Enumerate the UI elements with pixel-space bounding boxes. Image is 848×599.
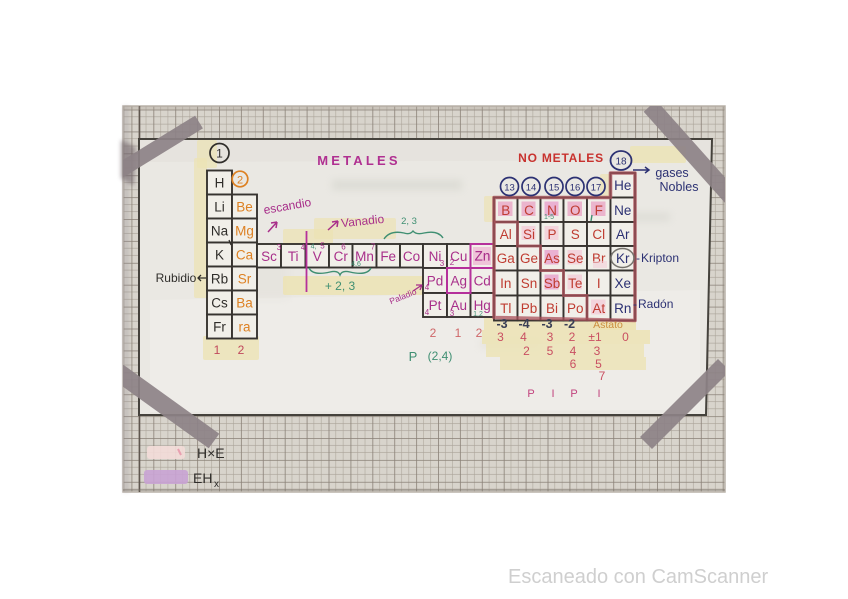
svg-text:Cl: Cl: [592, 227, 605, 242]
svg-text:1: 1: [216, 147, 223, 161]
svg-text:0: 0: [622, 330, 629, 344]
svg-text:Ge: Ge: [520, 251, 538, 266]
svg-text:Xe: Xe: [615, 276, 632, 291]
svg-text:V: V: [313, 249, 322, 264]
svg-text:5: 5: [547, 344, 554, 358]
svg-text:16: 16: [570, 183, 581, 194]
svg-text:17: 17: [591, 183, 602, 194]
svg-text:Escaneado con CamScanner: Escaneado con CamScanner: [508, 566, 768, 588]
svg-text:1: 1: [455, 326, 462, 340]
svg-text:Ag: Ag: [451, 274, 468, 289]
svg-text:Zn: Zn: [475, 249, 491, 264]
svg-text:Fe: Fe: [380, 249, 396, 264]
svg-text:Cd: Cd: [474, 274, 491, 289]
svg-text:4,: 4,: [311, 244, 317, 251]
svg-text:H×E: H×E: [197, 445, 225, 461]
svg-text:P: P: [409, 349, 418, 364]
svg-text:Na: Na: [211, 224, 229, 239]
svg-text:2: 2: [450, 258, 455, 267]
svg-text:Be: Be: [236, 200, 253, 215]
svg-text:18: 18: [615, 157, 627, 168]
svg-text:I: I: [597, 276, 601, 291]
svg-text:Bi: Bi: [546, 301, 558, 316]
svg-text:4: 4: [520, 330, 527, 344]
svg-text:5: 5: [320, 242, 325, 251]
svg-text:C: C: [524, 203, 534, 218]
svg-text:1,2: 1,2: [473, 311, 483, 318]
svg-text:O: O: [570, 203, 581, 218]
svg-text:Po: Po: [567, 301, 584, 316]
svg-text:Ca: Ca: [236, 248, 254, 263]
svg-text:3: 3: [440, 259, 445, 268]
svg-text:Pb: Pb: [521, 301, 538, 316]
svg-text:2: 2: [523, 344, 530, 358]
svg-text:Fr: Fr: [213, 320, 226, 335]
svg-text:NO METALES: NO METALES: [518, 151, 604, 165]
svg-text:Ba: Ba: [236, 296, 253, 311]
svg-text:1-5: 1-5: [544, 214, 554, 221]
svg-text:P: P: [547, 227, 556, 242]
svg-text:Sc: Sc: [261, 249, 277, 264]
svg-text:Ar: Ar: [616, 227, 630, 242]
svg-text:2: 2: [237, 175, 243, 187]
svg-text:6: 6: [341, 243, 346, 252]
svg-text:-2: -2: [564, 317, 575, 331]
svg-text:P: P: [570, 388, 577, 400]
svg-text:Si: Si: [523, 227, 535, 242]
svg-text:Kripton: Kripton: [641, 251, 679, 265]
svg-text:2: 2: [569, 330, 576, 344]
svg-text:S: S: [571, 227, 580, 242]
svg-text:Rubidio: Rubidio: [156, 271, 197, 285]
svg-text:Se: Se: [567, 251, 584, 266]
svg-text:H: H: [215, 176, 225, 191]
svg-text:Ne: Ne: [614, 203, 631, 218]
svg-text:3: 3: [497, 330, 504, 344]
svg-text:Co: Co: [403, 249, 420, 264]
svg-text:Te: Te: [568, 276, 582, 291]
svg-text:2: 2: [238, 343, 245, 357]
svg-text:2: 2: [430, 326, 437, 340]
svg-text:In: In: [500, 276, 511, 291]
svg-text:Tl: Tl: [500, 301, 511, 316]
svg-text:Cs: Cs: [211, 296, 228, 311]
svg-text:4,6: 4,6: [351, 261, 361, 268]
svg-text:(2,4): (2,4): [428, 349, 453, 363]
svg-text:7: 7: [371, 243, 376, 252]
svg-text:3: 3: [277, 243, 282, 252]
svg-text:6: 6: [570, 357, 577, 371]
svg-text:-3: -3: [496, 317, 507, 331]
svg-text:4: 4: [425, 308, 430, 317]
svg-text:He: He: [614, 178, 631, 193]
svg-text:Mg: Mg: [235, 224, 254, 239]
svg-text:Sr: Sr: [238, 272, 252, 287]
svg-text:Ti: Ti: [288, 249, 299, 264]
svg-text:13: 13: [504, 183, 515, 194]
svg-text:K: K: [215, 248, 224, 263]
svg-text:4: 4: [301, 243, 306, 252]
svg-text:Al: Al: [500, 227, 512, 242]
svg-text:I: I: [551, 388, 554, 400]
svg-text:2, 3: 2, 3: [401, 216, 417, 227]
svg-text:gases: gases: [655, 166, 688, 180]
svg-text:METALES: METALES: [317, 153, 401, 168]
svg-text:3: 3: [450, 309, 455, 318]
svg-text:Sn: Sn: [521, 276, 538, 291]
svg-text:Li: Li: [214, 200, 225, 215]
svg-text:±1: ±1: [588, 330, 602, 344]
svg-text:Ga: Ga: [497, 251, 516, 266]
svg-text:-: -: [633, 297, 637, 311]
svg-text:Rn: Rn: [614, 301, 631, 316]
svg-text:I: I: [597, 388, 600, 400]
svg-text:Sb: Sb: [544, 276, 561, 291]
svg-text:7: 7: [599, 369, 606, 383]
svg-text:14: 14: [526, 183, 537, 194]
svg-text:P: P: [527, 388, 534, 400]
svg-text:EH: EH: [193, 470, 212, 486]
svg-text:Kr: Kr: [616, 251, 630, 266]
svg-text:As: As: [544, 251, 560, 266]
svg-text:4: 4: [570, 344, 577, 358]
svg-text:At: At: [592, 301, 605, 316]
svg-text:3: 3: [594, 344, 601, 358]
svg-text:2: 2: [476, 326, 483, 340]
svg-text:Nobles: Nobles: [660, 180, 699, 194]
svg-text:F: F: [595, 203, 603, 218]
svg-text:-4: -4: [518, 317, 529, 331]
svg-text:ra: ra: [238, 320, 250, 335]
svg-text:1: 1: [214, 343, 221, 357]
svg-text:-: -: [636, 251, 640, 265]
svg-text:+ 2, 3: + 2, 3: [325, 279, 356, 293]
svg-text:Rb: Rb: [211, 272, 228, 287]
svg-text:4: 4: [425, 283, 430, 292]
svg-text:x: x: [214, 479, 219, 490]
svg-text:3: 3: [547, 330, 554, 344]
svg-text:Pt: Pt: [429, 298, 442, 313]
svg-text:Radón: Radón: [638, 297, 673, 311]
svg-text:15: 15: [549, 183, 560, 194]
svg-text:B: B: [501, 203, 510, 218]
svg-text:-3: -3: [541, 317, 552, 331]
